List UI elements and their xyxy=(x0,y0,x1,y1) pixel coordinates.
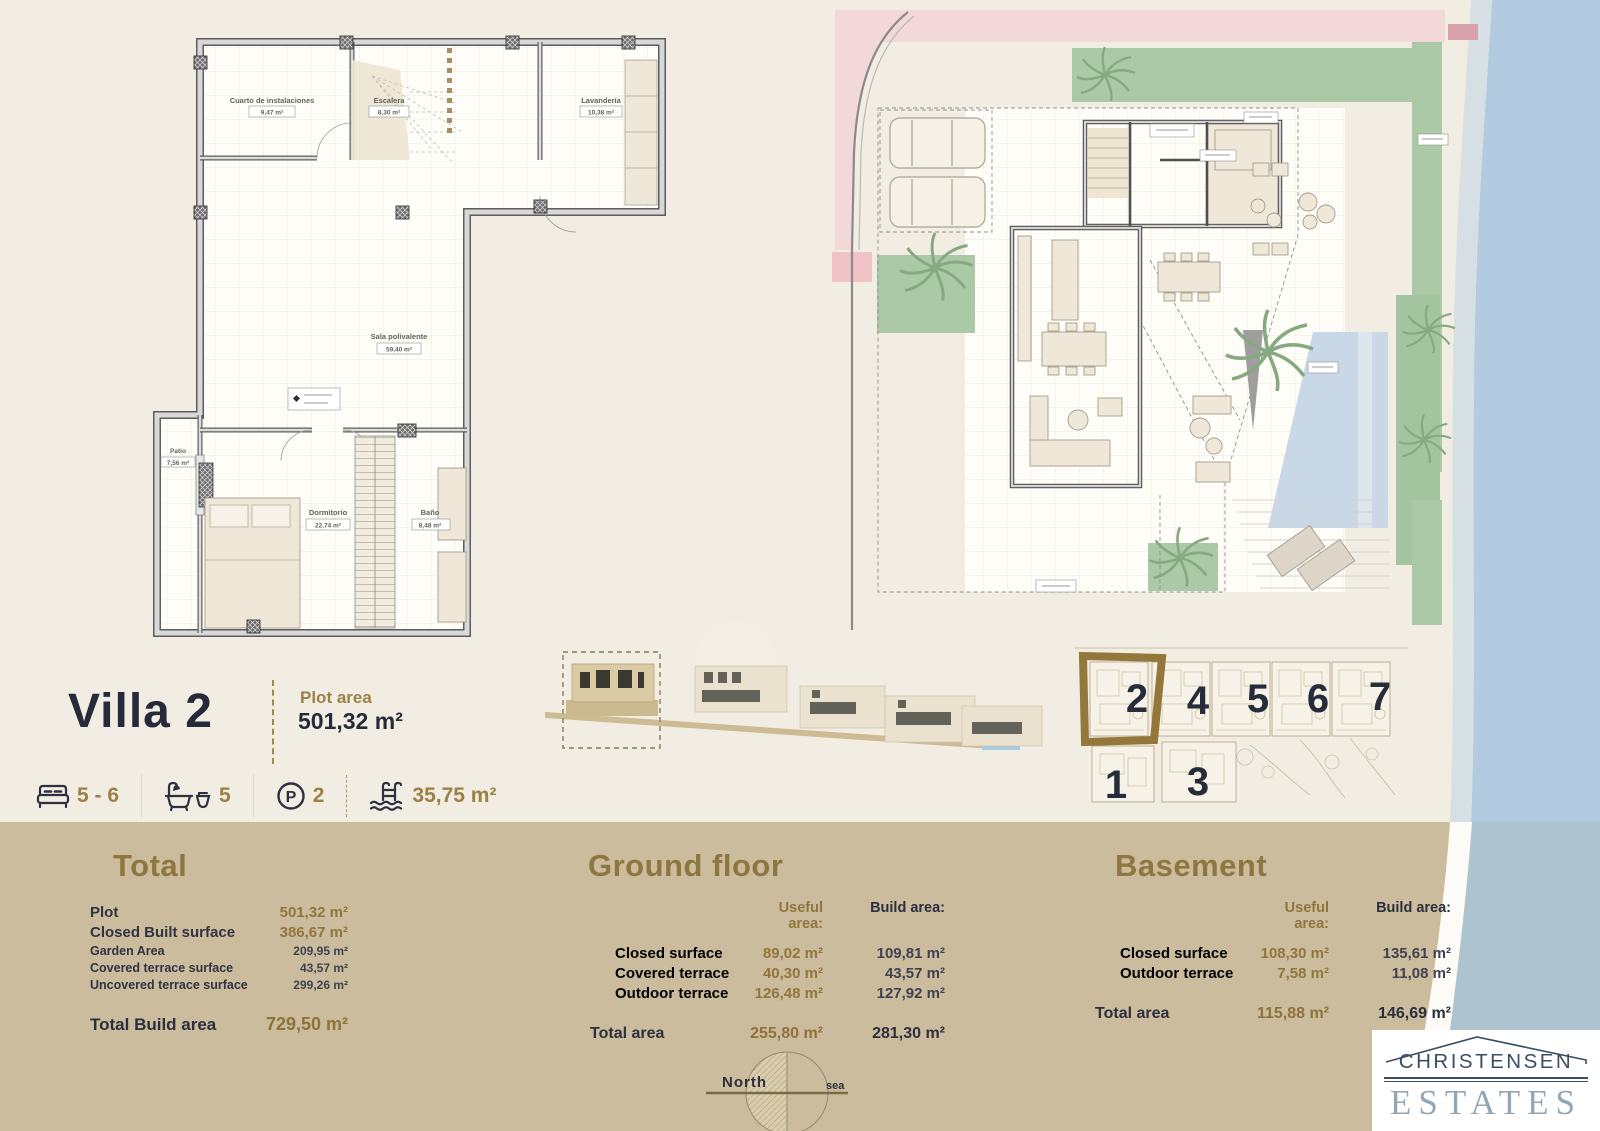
row-label: Covered terrace surface xyxy=(90,961,233,975)
pool-size-value: 35,75 m² xyxy=(412,784,496,808)
basement-floor-plan: Cuarto de instalaciones 9,47 m² Escalera… xyxy=(157,36,662,633)
useful-area-header: Useful area: xyxy=(745,900,823,942)
parking-value: 2 xyxy=(313,784,325,808)
row-value: 209,95 m² xyxy=(293,944,348,958)
row-build: 109,81 m² xyxy=(823,945,945,962)
site-plan: 2 4 5 6 7 1 3 xyxy=(1075,648,1408,807)
room-label: Dormitorio xyxy=(309,508,348,517)
row-useful: 108,30 m² xyxy=(1247,945,1329,962)
bathrooms-feature: 5 xyxy=(164,780,231,812)
plot-area-value: 501,32 m² xyxy=(298,708,403,735)
parking-feature: P 2 xyxy=(276,781,325,811)
row-label: Closed Built surface xyxy=(90,924,235,941)
total-label: Total area xyxy=(590,1005,745,1043)
row-label: Outdoor terrace xyxy=(1095,965,1247,982)
table-row: Uncovered terrace surface 299,26 m² xyxy=(90,978,348,992)
ground-floor-table: Useful area: Build area: Closed surface … xyxy=(590,900,945,1043)
road-top xyxy=(845,10,1445,42)
build-area-header: Build area: xyxy=(1329,900,1451,942)
build-area-header: Build area: xyxy=(823,900,945,942)
room-label: Sala polivalente xyxy=(371,332,428,341)
room-area: 8,48 m² xyxy=(419,523,442,530)
room-area: 9,47 m² xyxy=(261,110,284,117)
row-value: 386,67 m² xyxy=(280,924,348,941)
total-useful: 255,80 m² xyxy=(745,1005,823,1043)
brochure-page: { "villa": { "title": "Villa 2", "plot_a… xyxy=(0,0,1600,1131)
room-area: 8,30 m² xyxy=(378,110,401,117)
feature-row: 5 - 6 5 P 2 xyxy=(36,776,496,816)
bed-icon xyxy=(36,781,70,811)
logo-rule xyxy=(1384,1081,1588,1082)
hillside-elevation xyxy=(545,620,1042,750)
ground-floor-heading: Ground floor xyxy=(588,848,783,884)
ground-floor-plan xyxy=(832,10,1478,630)
room-label: Cuarto de instalaciones xyxy=(230,96,315,105)
useful-area-header: Useful area: xyxy=(1247,900,1329,942)
row-useful: 7,58 m² xyxy=(1247,965,1329,982)
row-useful: 89,02 m² xyxy=(745,945,823,962)
row-useful: 126,48 m² xyxy=(745,985,823,1002)
room-label: Patio xyxy=(170,448,186,455)
pool-feature: 35,75 m² xyxy=(369,780,496,812)
page-title: Villa 2 xyxy=(68,684,213,739)
table-row: Closed Built surface 386,67 m² xyxy=(90,924,348,941)
row-build: 11,08 m² xyxy=(1329,965,1451,982)
total-useful: 115,88 m² xyxy=(1247,985,1329,1023)
row-label: Outdoor terrace xyxy=(590,985,745,1002)
title-divider xyxy=(272,680,274,764)
bathtub-icon xyxy=(164,780,212,812)
table-total-row: Total Build area 729,50 m² xyxy=(90,1014,348,1035)
total-build: 281,30 m² xyxy=(823,1005,945,1043)
total-heading: Total xyxy=(113,848,187,884)
plot-area-label: Plot area xyxy=(300,688,372,708)
row-build: 43,57 m² xyxy=(823,965,945,982)
feature-divider xyxy=(253,775,254,817)
company-logo: CHRISTENSEN ESTATES xyxy=(1372,1030,1600,1131)
room-label: Escalera xyxy=(374,96,406,105)
basement-heading: Basement xyxy=(1115,848,1267,884)
parking-icon: P xyxy=(276,781,306,811)
row-value: 299,26 m² xyxy=(293,978,348,992)
table-row: Covered terrace surface 43,57 m² xyxy=(90,961,348,975)
row-build: 127,92 m² xyxy=(823,985,945,1002)
svg-text:P: P xyxy=(285,789,296,806)
pool-icon xyxy=(369,780,405,812)
row-useful: 40,30 m² xyxy=(745,965,823,982)
table-row: Plot 501,32 m² xyxy=(90,904,348,921)
stair-markers xyxy=(447,48,452,133)
compass-north-label: North xyxy=(722,1074,767,1091)
room-area: 7,56 m² xyxy=(167,460,190,467)
logo-subname: ESTATES xyxy=(1372,1083,1600,1123)
feature-divider-dashed xyxy=(346,775,347,817)
total-table: Plot 501,32 m² Closed Built surface 386,… xyxy=(90,904,348,1038)
row-build: 135,61 m² xyxy=(1329,945,1451,962)
bedrooms-feature: 5 - 6 xyxy=(36,781,119,811)
row-label: Uncovered terrace surface xyxy=(90,978,248,992)
room-area: 59,40 m² xyxy=(386,347,413,354)
row-value: 43,57 m² xyxy=(300,961,348,975)
room-area: 10,38 m² xyxy=(588,110,615,117)
row-label: Closed surface xyxy=(1095,945,1247,962)
villa-number-1: 1 xyxy=(1105,763,1127,807)
bathrooms-value: 5 xyxy=(219,784,231,808)
row-label: Closed surface xyxy=(590,945,745,962)
room-area: 22,74 m² xyxy=(315,523,342,530)
row-label: Covered terrace xyxy=(590,965,745,982)
logo-rule xyxy=(1384,1077,1588,1079)
feature-divider xyxy=(141,775,142,817)
total-build: 146,69 m² xyxy=(1329,985,1451,1023)
villa-number-4: 4 xyxy=(1187,679,1210,723)
villa-number-3: 3 xyxy=(1187,760,1209,804)
villa-number-2: 2 xyxy=(1126,677,1148,721)
total-value: 729,50 m² xyxy=(266,1014,348,1035)
compass-sea-label: sea xyxy=(826,1080,845,1092)
villa-number-5: 5 xyxy=(1247,677,1269,721)
table-row: Garden Area 209,95 m² xyxy=(90,944,348,958)
row-label: Garden Area xyxy=(90,944,165,958)
total-label: Total area xyxy=(1095,985,1247,1023)
logo-name: CHRISTENSEN xyxy=(1372,1050,1600,1074)
villa-number-6: 6 xyxy=(1307,677,1329,721)
row-value: 501,32 m² xyxy=(280,904,348,921)
villa-number-7: 7 xyxy=(1369,675,1391,719)
basement-table: Useful area: Build area: Closed surface … xyxy=(1095,900,1451,1023)
total-label: Total Build area xyxy=(90,1015,216,1035)
bedrooms-value: 5 - 6 xyxy=(77,784,119,808)
room-label: Lavandería xyxy=(581,96,621,105)
room-label: Baño xyxy=(421,508,440,517)
row-label: Plot xyxy=(90,904,118,921)
north-compass: North sea xyxy=(706,1052,848,1131)
